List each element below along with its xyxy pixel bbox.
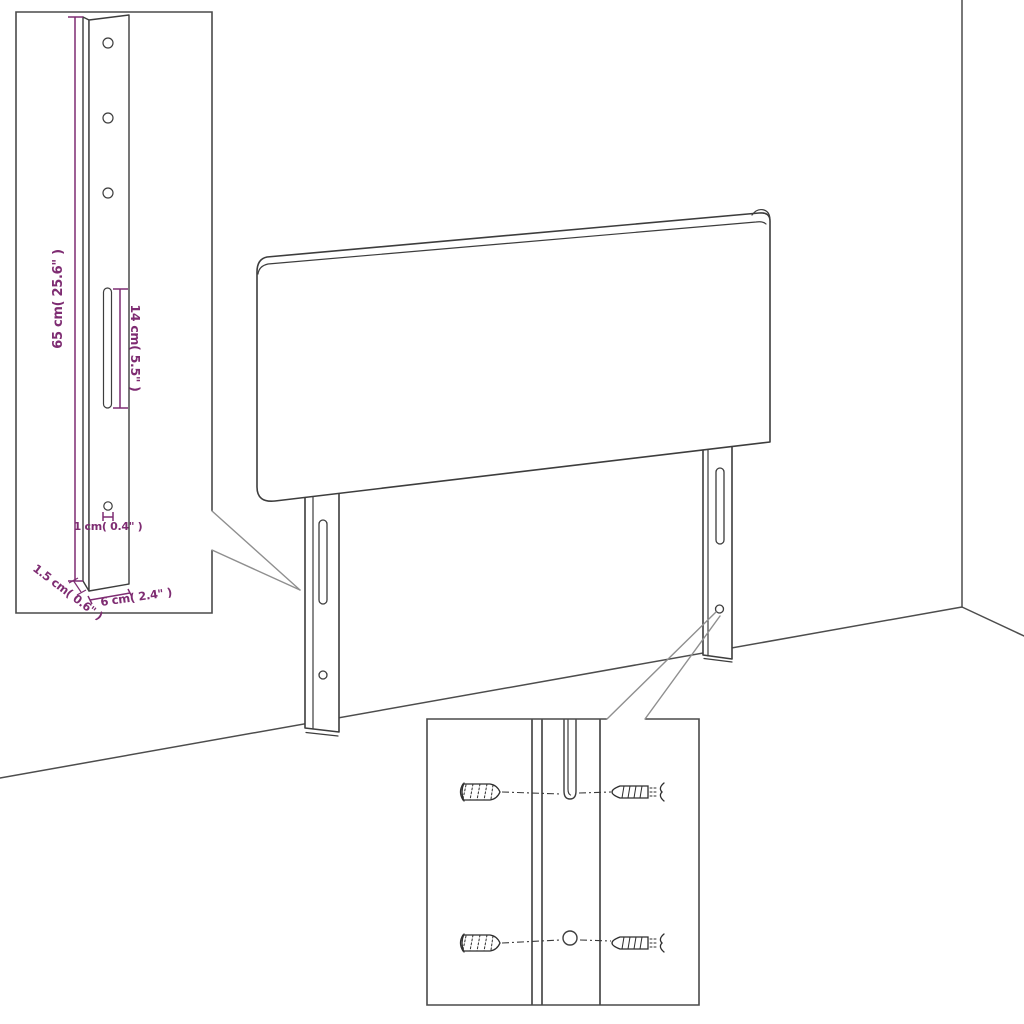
headboard-right-leg	[703, 436, 732, 662]
floor-line-right	[962, 607, 1024, 636]
hardware-connector-left	[607, 612, 716, 719]
leg-inset-connectors	[212, 511, 300, 590]
leg-detail-hole-1	[103, 38, 113, 48]
leg-detail-side-face	[83, 17, 89, 591]
headboard-left-leg	[305, 474, 339, 736]
hole-diameter-label: 1 cm( 0.4" )	[74, 520, 143, 533]
headboard-panel	[257, 210, 770, 502]
slot-length-label: 14 cm( 5.5" )	[128, 304, 143, 391]
left-leg-slot	[319, 520, 327, 604]
headboard-dimension-diagram: 65 cm( 25.6" ) 14 cm( 5.5" ) 1 cm( 0.4" …	[0, 0, 1024, 1024]
leg-height-label: 65 cm( 25.6" )	[51, 249, 66, 348]
right-leg-hole	[716, 605, 724, 613]
leg-inset-connector-upper	[212, 511, 300, 590]
hardware-connector-right	[645, 616, 720, 719]
diagram-canvas: 65 cm( 25.6" ) 14 cm( 5.5" ) 1 cm( 0.4" …	[0, 0, 1024, 1024]
leg-detail-drawing	[83, 15, 129, 591]
right-leg-slot	[716, 468, 724, 544]
left-leg-hole	[319, 671, 327, 679]
leg-detail-hole-3	[103, 188, 113, 198]
leg-detail-small-hole	[104, 502, 112, 510]
leg-detail-inset: 65 cm( 25.6" ) 14 cm( 5.5" ) 1 cm( 0.4" …	[16, 12, 212, 623]
left-leg-foot-line	[306, 733, 338, 737]
leg-detail-slot	[104, 288, 112, 408]
headboard-panel-outline	[257, 213, 770, 501]
hardware-inset-background	[427, 719, 699, 1005]
leg-detail-hole-2	[103, 113, 113, 123]
strip-hole	[563, 931, 577, 945]
leg-inset-connector-lower	[212, 550, 300, 590]
hardware-detail-inset	[427, 719, 699, 1005]
